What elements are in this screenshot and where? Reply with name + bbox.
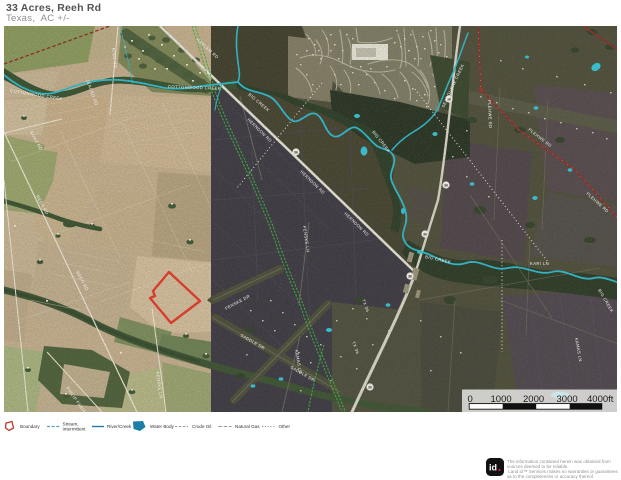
svg-text:Intermittent: Intermittent — [63, 427, 87, 432]
svg-text:id: id — [489, 463, 497, 473]
svg-text:Boundary: Boundary — [20, 424, 40, 429]
svg-text:Other: Other — [279, 424, 291, 429]
svg-text:River/Creek: River/Creek — [107, 424, 132, 429]
svg-text:Natural Gas: Natural Gas — [235, 424, 260, 429]
svg-text:Water Body: Water Body — [150, 424, 175, 429]
svg-text:Crude Oil: Crude Oil — [192, 424, 211, 429]
